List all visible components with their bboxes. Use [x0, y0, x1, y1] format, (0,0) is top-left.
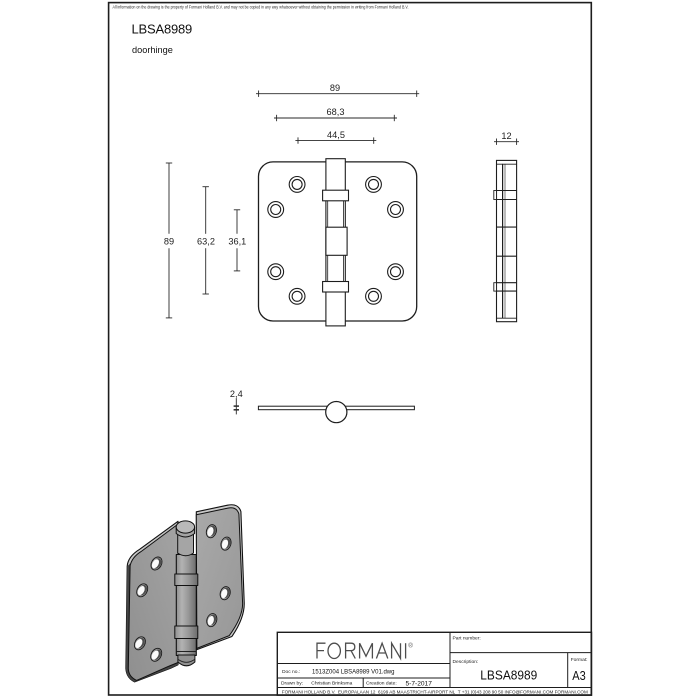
- svg-text:89: 89: [164, 236, 174, 246]
- svg-text:Part number:: Part number:: [453, 636, 481, 642]
- svg-text:36,1: 36,1: [228, 236, 246, 246]
- svg-text:5-7-2017: 5-7-2017: [406, 680, 433, 687]
- svg-text:12: 12: [501, 131, 511, 141]
- svg-text:Drawn by:: Drawn by:: [281, 681, 303, 687]
- svg-text:FORMANI HOLLAND B.V. EUROPALA: FORMANI HOLLAND B.V. EUROPALAAN 12 6199 …: [282, 690, 588, 695]
- svg-text:®: ®: [408, 642, 413, 649]
- svg-text:Format:: Format:: [571, 657, 588, 663]
- svg-text:63,2: 63,2: [197, 236, 215, 246]
- svg-text:LBSA8989: LBSA8989: [132, 22, 193, 37]
- svg-text:LBSA8989: LBSA8989: [480, 668, 537, 683]
- svg-text:Creation date:: Creation date:: [366, 681, 397, 687]
- svg-text:A3: A3: [572, 668, 586, 683]
- svg-text:Doc no.:: Doc no.:: [282, 669, 300, 675]
- svg-text:89: 89: [330, 83, 340, 93]
- svg-text:1513Z004 LBSA8989 V01.dwg: 1513Z004 LBSA8989 V01.dwg: [312, 669, 395, 676]
- svg-text:All information on the drawing: All information on the drawing is the pr…: [113, 4, 409, 9]
- svg-text:2,4: 2,4: [230, 389, 243, 399]
- svg-text:doorhinge: doorhinge: [132, 45, 173, 55]
- svg-text:44,5: 44,5: [327, 130, 345, 140]
- svg-text:Description:: Description:: [453, 659, 479, 665]
- svg-text:68,3: 68,3: [327, 107, 345, 117]
- svg-text:Christian Brinksma: Christian Brinksma: [311, 681, 352, 687]
